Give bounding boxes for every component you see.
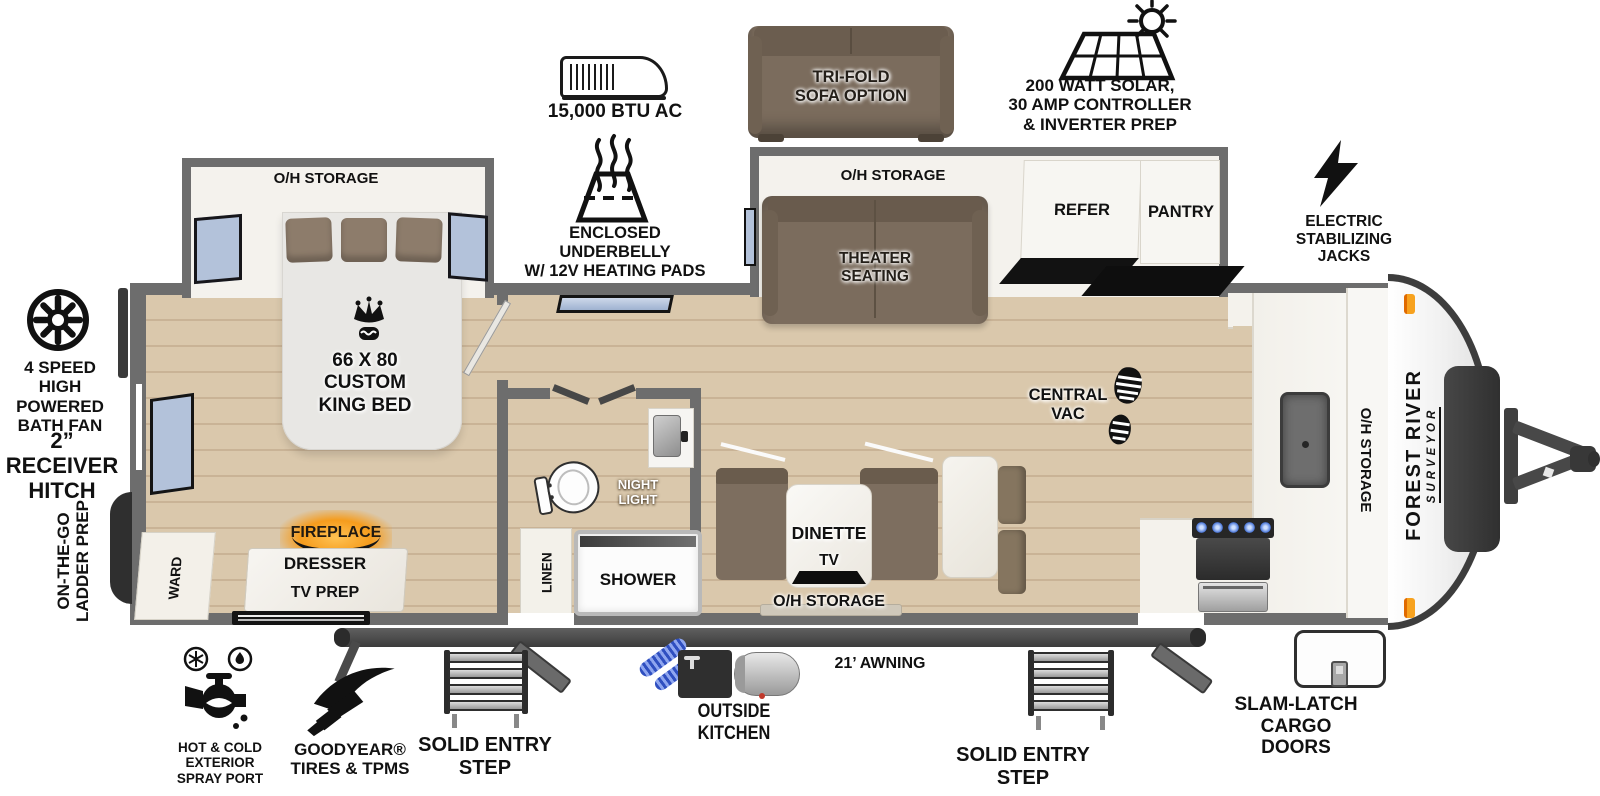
- step-rung: [1032, 652, 1110, 663]
- bedroom-window-left: [194, 214, 242, 284]
- pantry-open-door: [1081, 266, 1244, 296]
- rear-window: [150, 393, 194, 495]
- king-bed-label: 66 X 80 CUSTOM KING BED: [290, 350, 440, 417]
- step-rung: [1032, 684, 1110, 695]
- kitchen-sink: [1280, 392, 1330, 488]
- bed-bath-wall-lower: [497, 380, 508, 613]
- step-rung: [448, 652, 524, 663]
- awning-tube: [334, 628, 1206, 647]
- tri-fold-sofa: TRI-FOLD SOFA OPTION: [748, 26, 954, 142]
- refer-label: REFER: [1023, 201, 1142, 220]
- wardrobe: WARD: [134, 532, 216, 620]
- bath-sink-counter: [648, 408, 694, 468]
- stove: [1192, 518, 1274, 613]
- brand-make: FOREST RIVER: [1403, 369, 1426, 541]
- bath-sink-basin: [653, 415, 681, 457]
- step-leg-r: [1100, 716, 1105, 730]
- tank-valve: [759, 693, 765, 699]
- outside-kitchen-tank: [734, 652, 800, 696]
- entry-step-right-label: SOLID ENTRY STEP: [956, 744, 1090, 790]
- awning-cap-left: [334, 628, 350, 647]
- spray-port-icon: [178, 646, 262, 738]
- step-rung: [448, 684, 524, 695]
- awning-cap-right: [1190, 628, 1206, 647]
- cargo-latch-button: [1336, 666, 1343, 674]
- sofa-foot-left: [758, 134, 784, 142]
- ac-label: 15,000 BTU AC: [540, 101, 690, 123]
- cargo-doors-label: SLAM-LATCH CARGO DOORS: [1228, 694, 1364, 759]
- entry-step-left-label: SOLID ENTRY STEP: [418, 734, 552, 780]
- floorplan-stage: 15,000 BTU AC TRI-FOLD SOFA OPTION 200 W…: [0, 0, 1600, 796]
- awning-label: 21’ AWNING: [824, 655, 936, 673]
- island-seat-top: [998, 466, 1026, 524]
- step-leg-l: [1036, 716, 1041, 730]
- tv-icon: [792, 571, 866, 584]
- dresser-label: DRESSER: [250, 554, 400, 573]
- step-leg-r: [514, 714, 519, 728]
- kitchen-sink-drain: [1302, 441, 1309, 448]
- stove-glass: [1196, 538, 1270, 580]
- outside-kitchen-label: OUTSIDE KITCHEN: [667, 701, 801, 744]
- ladder-prep-label: ON-THE-GO LADDER PREP: [54, 486, 100, 636]
- rear-spare-bump: [110, 492, 132, 604]
- bed-pillow-2: [341, 218, 387, 262]
- theater-arm-right: [972, 210, 988, 316]
- central-vac-label: CENTRAL VAC: [1018, 386, 1118, 424]
- linen-label: LINEN: [539, 498, 554, 648]
- goodyear-label: GOODYEAR® TIRES & TPMS: [288, 740, 412, 779]
- bath-top-wall-left: [508, 388, 550, 399]
- theater-seating: THEATER SEATING: [762, 196, 988, 324]
- bedroom-overhead-label: O/H STORAGE: [176, 170, 476, 187]
- kitchen-overhead-label: O/H STORAGE: [1354, 385, 1374, 535]
- hall-window: [556, 295, 674, 313]
- rear-bumper-upper: [118, 288, 128, 378]
- theater-arm-left: [762, 210, 778, 316]
- dinette-label: DINETTE: [776, 524, 882, 544]
- tv-prep-strip-line1: [238, 615, 364, 617]
- tv-prep-strip: [232, 611, 370, 625]
- jacks-label: ELECTRIC STABILIZING JACKS: [1282, 213, 1406, 266]
- entry-door-gap-left: [508, 613, 574, 625]
- lightning-icon: [1312, 140, 1360, 208]
- rear-wall-slit: [136, 384, 142, 470]
- dinette-bench-right-back: [860, 468, 938, 484]
- stove-front: [1198, 582, 1268, 612]
- king-crown-icon: [347, 296, 391, 348]
- dinette-tv-label: TV: [776, 552, 882, 570]
- island-seat-bottom: [998, 530, 1026, 594]
- solar-panel-icon: [1048, 0, 1180, 86]
- linen-cabinet: LINEN: [520, 528, 572, 614]
- dinette-bench-left-back: [716, 468, 788, 484]
- dinette-overhead-label: O/H STORAGE: [764, 593, 894, 611]
- stove-flame-4: [1244, 522, 1255, 533]
- ac-vent-lines: [570, 64, 614, 90]
- tank-cap: [735, 655, 745, 693]
- step-rung: [1032, 668, 1110, 679]
- sofa-seam: [850, 28, 852, 54]
- ac-unit-icon: [560, 56, 668, 102]
- step-rung: [448, 668, 524, 679]
- fireplace-label: FIREPLACE: [286, 524, 386, 542]
- step-rung: [448, 700, 524, 711]
- ac-base: [562, 96, 666, 100]
- stove-flame-2: [1212, 522, 1223, 533]
- shower: SHOWER: [574, 530, 702, 616]
- bath-sink-faucet: [681, 431, 688, 442]
- bath-fan-label: 4 SPEED HIGH POWERED BATH FAN: [0, 358, 120, 436]
- tv-prep-strip-line2: [238, 619, 364, 621]
- rock-guard: [1444, 366, 1500, 552]
- bath-fan-icon: [24, 286, 92, 354]
- underbelly-label: ENCLOSED UNDERBELLY W/ 12V HEATING PADS: [518, 224, 712, 280]
- refrigerator: REFER: [1020, 160, 1141, 260]
- goodyear-wingfoot-icon: [302, 662, 398, 738]
- cargo-latch: [1331, 661, 1348, 687]
- living-overhead-label: O/H STORAGE: [793, 167, 993, 184]
- underbelly-heat-icon: [566, 136, 658, 224]
- outside-kitchen-faucet-stem: [690, 660, 694, 669]
- sofa-foot-right: [918, 134, 944, 142]
- theater-label: THEATER SEATING: [792, 250, 958, 285]
- entry-step-left: [444, 650, 528, 728]
- tv-prep-label: TV PREP: [250, 584, 400, 602]
- bed-pillow-3: [395, 217, 443, 263]
- hitch-knob: [1588, 451, 1600, 467]
- open-entry-door-right: [1150, 642, 1213, 695]
- night-light-label: NIGHT LIGHT: [602, 478, 674, 508]
- shower-label: SHOWER: [578, 570, 698, 589]
- toilet-seat: [555, 467, 593, 508]
- step-leg-l: [452, 714, 457, 728]
- cargo-door: [1294, 630, 1386, 688]
- stove-handle: [1203, 586, 1263, 589]
- living-slide-window: [744, 208, 756, 266]
- pantry: PANTRY: [1140, 160, 1220, 264]
- bedroom-window-right: [448, 212, 488, 281]
- trifold-label: TRI-FOLD SOFA OPTION: [748, 68, 954, 106]
- solar-label: 200 WATT SOLAR, 30 AMP CONTROLLER & INVE…: [1005, 76, 1195, 134]
- spray-port-label: HOT & COLD EXTERIOR SPRAY PORT: [148, 740, 292, 786]
- stove-flame-1: [1196, 522, 1207, 533]
- pantry-label: PANTRY: [1137, 203, 1225, 222]
- entry-step-right: [1028, 650, 1114, 730]
- stove-flame-5: [1260, 522, 1271, 533]
- entry-door-gap-right: [1138, 613, 1204, 625]
- stove-flame-3: [1228, 522, 1239, 533]
- brand-block: FOREST RIVER SURVEYOR: [1399, 305, 1445, 605]
- step-rung: [1032, 700, 1110, 711]
- kitchen-island: [942, 456, 998, 578]
- brand-model: SURVEYOR: [1426, 407, 1441, 504]
- shower-glass: [580, 536, 696, 547]
- bed-pillow-1: [285, 217, 333, 263]
